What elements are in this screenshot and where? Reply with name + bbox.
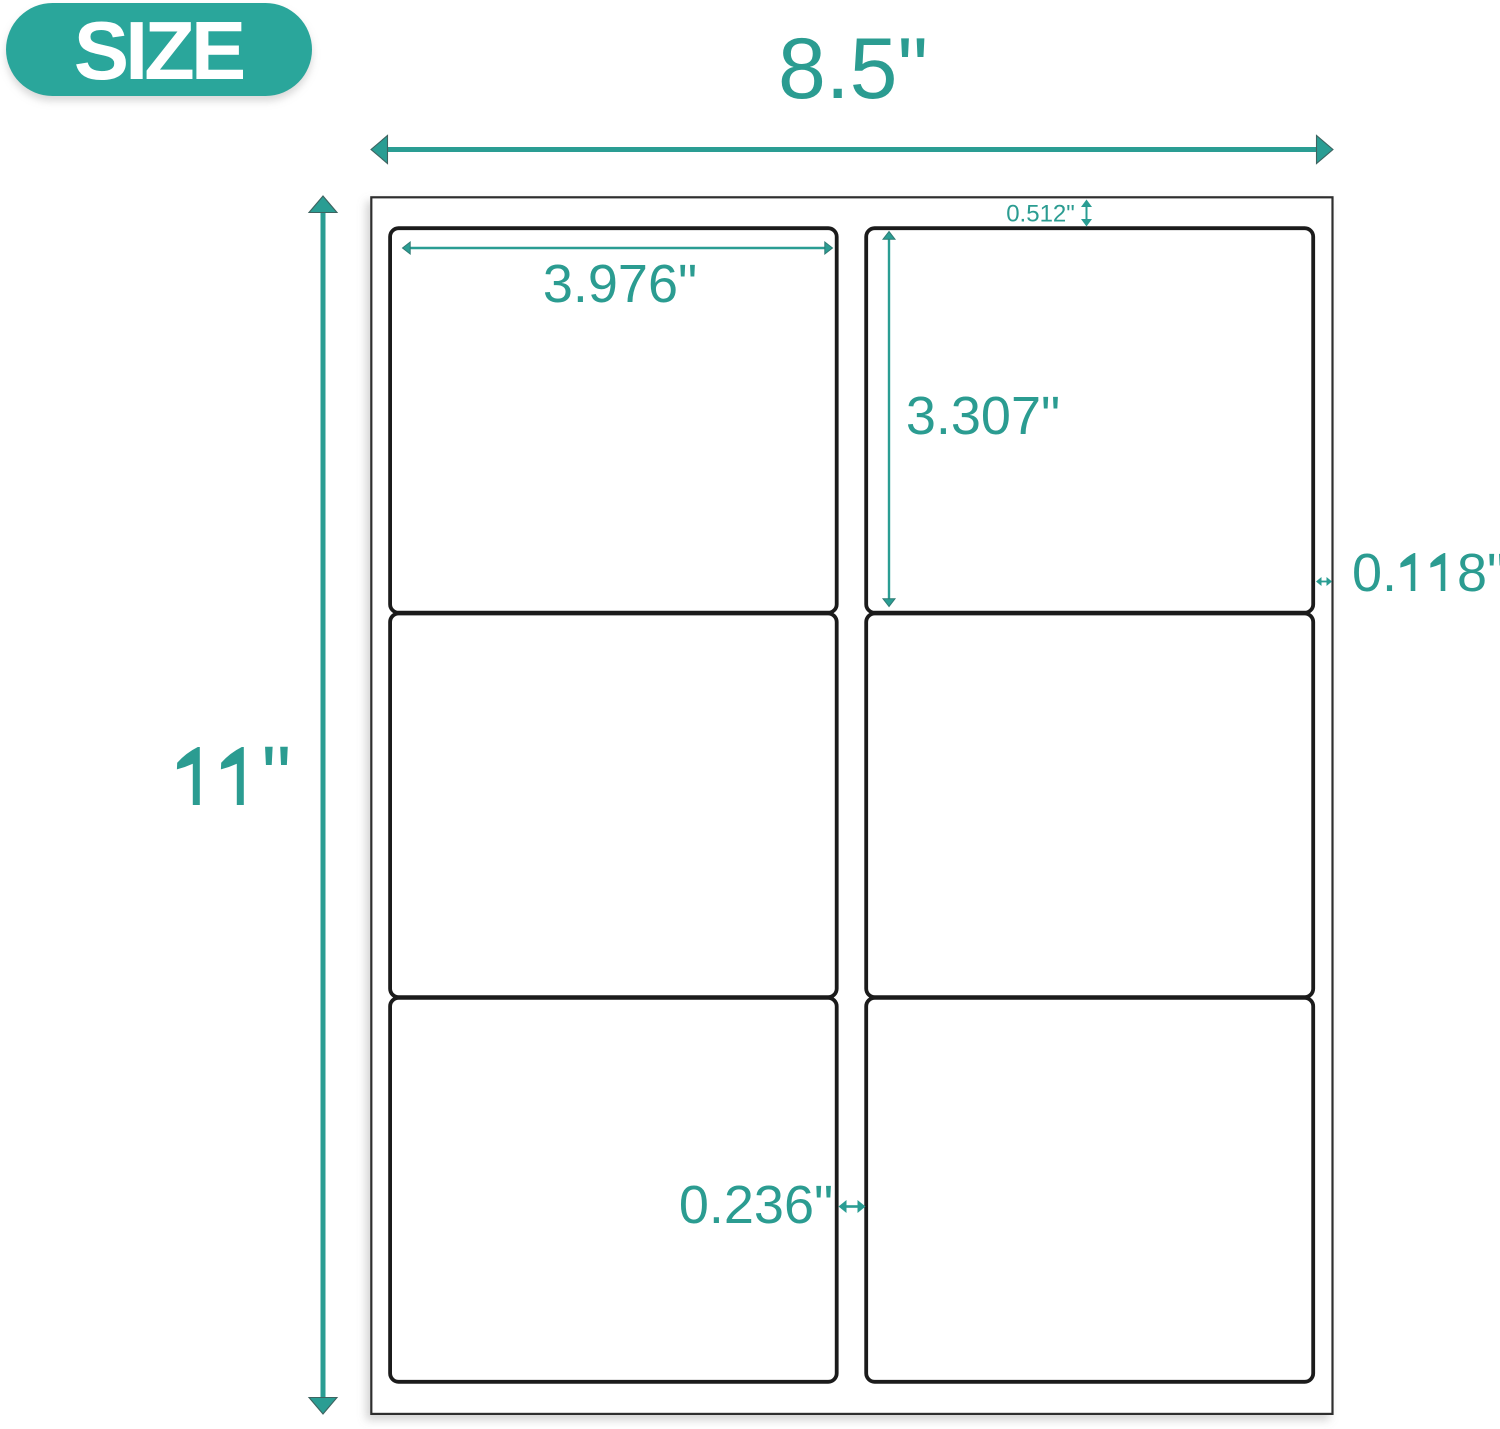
svg-text:0.: 0. <box>1352 543 1397 603</box>
svg-text:8.5": 8.5" <box>778 21 928 117</box>
svg-text:": " <box>262 729 292 823</box>
svg-text:0.236": 0.236" <box>679 1175 833 1235</box>
svg-text:3.307": 3.307" <box>906 386 1060 446</box>
svg-text:8": 8" <box>1457 543 1500 603</box>
svg-text:SIZE: SIZE <box>74 4 244 97</box>
svg-text:3.976": 3.976" <box>543 254 697 314</box>
svg-text:0.512": 0.512" <box>1006 201 1075 228</box>
